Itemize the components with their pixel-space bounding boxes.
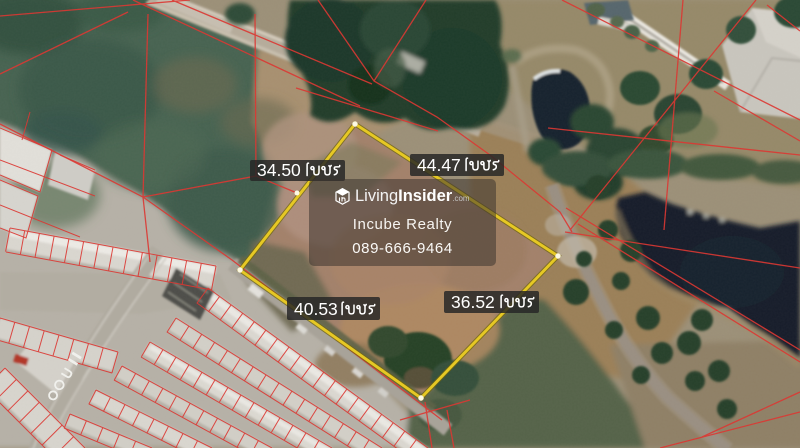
svg-text:36.52: 36.52 [451,292,495,312]
svg-text:44.47: 44.47 [417,155,461,175]
svg-text:34.50: 34.50 [257,160,301,180]
svg-text:40.53: 40.53 [294,299,338,319]
